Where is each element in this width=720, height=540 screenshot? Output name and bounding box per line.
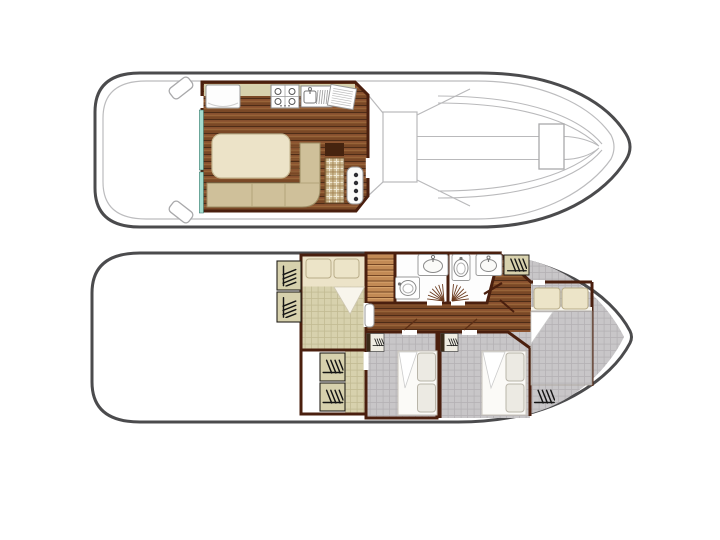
saloon-fwd-door-gap [366,158,371,178]
saloon-galley [199,82,370,213]
window-strip-fwd [199,172,203,213]
pillow [418,353,436,381]
aft-cabin-wardrobes [277,261,301,322]
pillow [534,288,560,309]
side-door-gap [199,96,204,108]
toilet-icon [396,277,420,299]
stove-icon [271,85,299,108]
boat-floorplan-page [0,0,720,540]
plaid-bench [325,158,344,203]
drain-rack-icon [327,84,356,109]
window-strip-aft [199,110,203,170]
companionway-stairs [366,253,395,303]
floor-plan-image [0,0,720,540]
lower-deck [92,253,632,422]
helm-seat [347,167,363,204]
washbasin-icon [476,255,502,276]
dinette-table [212,134,290,178]
pillow [306,259,331,278]
double-bed [531,288,592,385]
aft-cabin-door-leaf [365,304,374,327]
pillow [506,353,524,381]
side-cabinet [325,143,344,156]
pillow [334,259,359,278]
pillow [418,384,436,412]
pillow [562,288,588,309]
deck-hatch [539,124,564,169]
fridge-icon [206,85,240,108]
toilet-icon [452,255,470,281]
washbasin-icon [418,255,448,276]
aft-dressing-carpet [345,351,366,413]
upper-deck [95,73,630,227]
pillow [506,384,524,412]
